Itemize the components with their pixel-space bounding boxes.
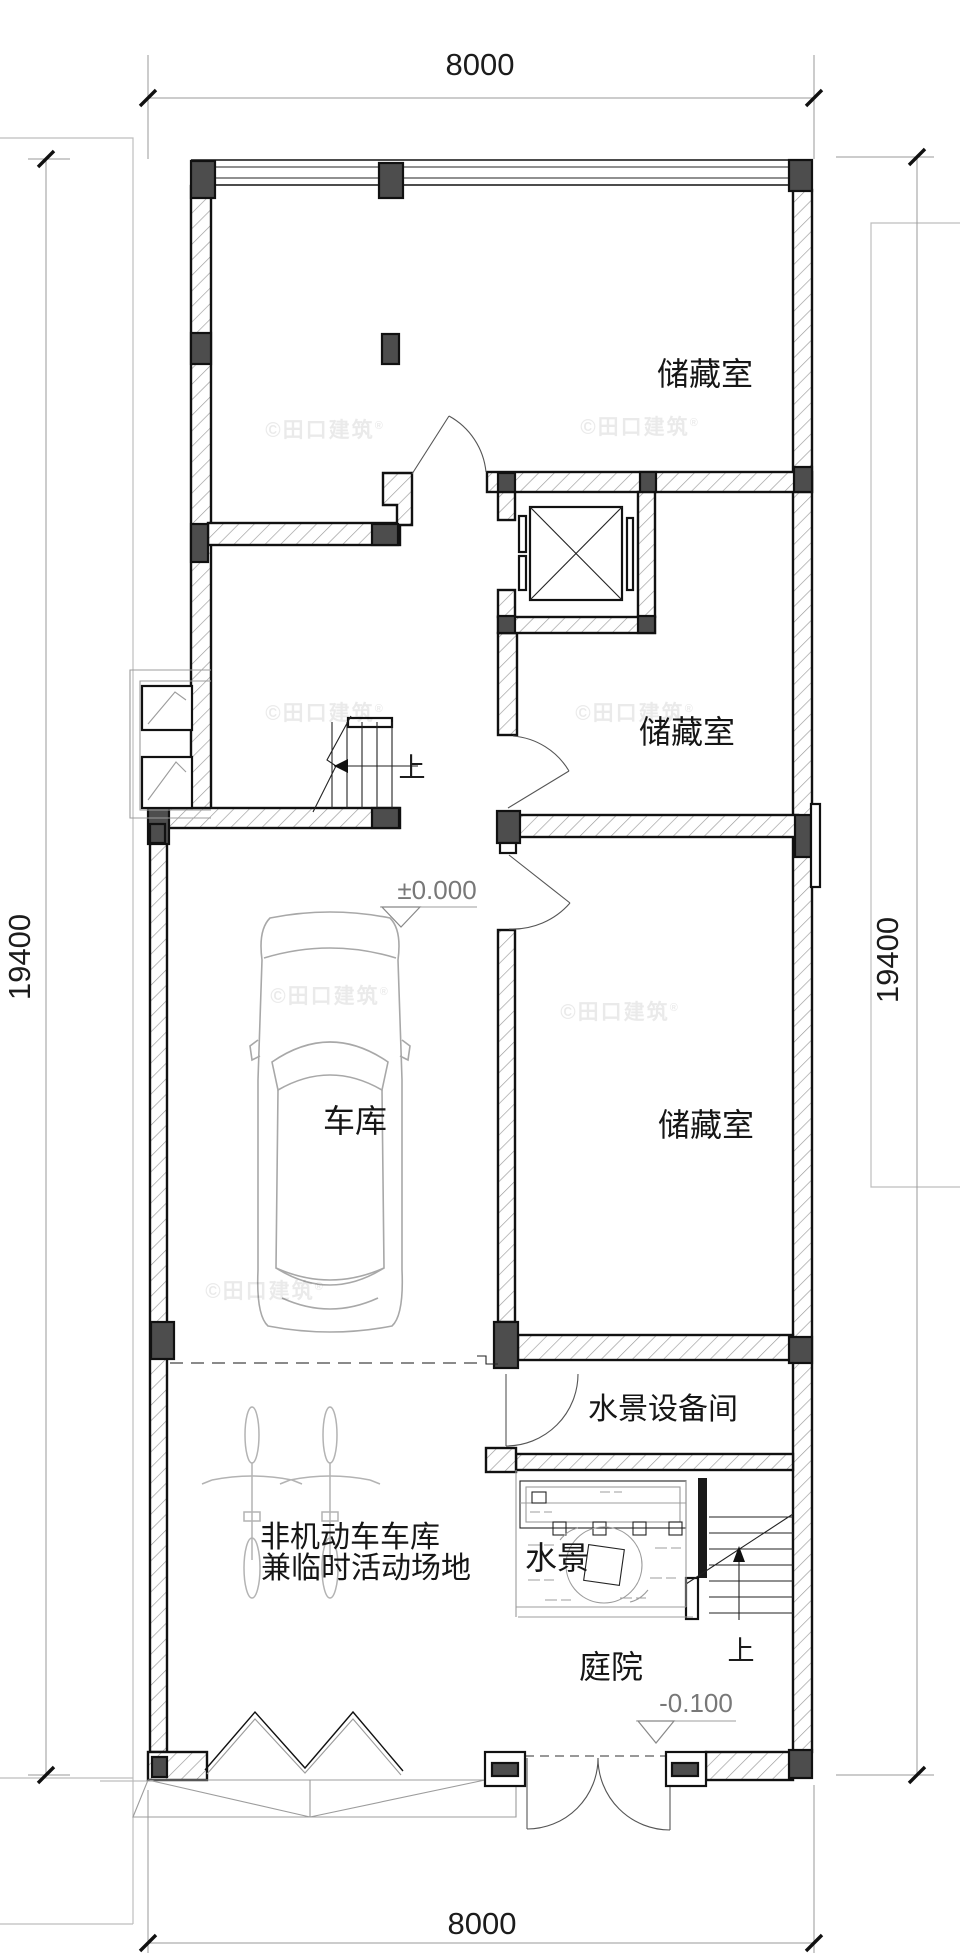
walls <box>148 159 812 1780</box>
door-water-equipment <box>506 1374 578 1446</box>
columns <box>148 160 820 1778</box>
dimension-right: 19400 <box>836 149 934 1783</box>
wall-right <box>793 190 812 1752</box>
stair-interior: 上 <box>313 716 426 812</box>
site-boundary-left <box>0 138 148 1924</box>
dim-top-label: 8000 <box>446 47 515 82</box>
level-ground-text: ±0.000 <box>397 875 476 905</box>
garage-folding-door <box>205 1712 403 1775</box>
site-boundary-right <box>871 223 960 1187</box>
dimension-top: 8000 <box>140 47 822 159</box>
watermark: ©田口建筑® <box>205 1279 325 1303</box>
stair-direction-arrow <box>733 1546 745 1562</box>
room-label-bike-garage-2: 兼临时活动场地 <box>261 1552 471 1585</box>
floor-plan-drawing: 8000 8000 19400 19400 <box>0 0 960 1960</box>
wall-waterequip-jog <box>486 1448 516 1472</box>
wall-waterequip-bottom <box>516 1454 793 1470</box>
niche-box <box>142 757 192 808</box>
wall-bottom-right <box>706 1752 793 1780</box>
driveway-apron <box>133 1780 516 1817</box>
door-garage-storage3 <box>509 855 570 929</box>
elevator <box>498 492 655 633</box>
level-courtyard-text: -0.100 <box>659 1688 733 1718</box>
door-storage1 <box>412 416 486 474</box>
watermark: ©田口建筑® <box>265 701 385 725</box>
dim-bottom-label: 8000 <box>448 1906 517 1941</box>
door-storage2 <box>508 736 569 808</box>
wall-door-jog <box>383 473 412 525</box>
wall-garage-right <box>498 930 515 1322</box>
elevator-rail <box>627 518 633 590</box>
watermark: ©田口建筑® <box>270 984 390 1008</box>
level-marker-ground: ±0.000 <box>380 875 477 927</box>
wall-left-lower <box>150 810 167 1752</box>
room-label-bike-garage-1: 非机动车车库 <box>260 1521 440 1554</box>
elevator-door-panel <box>519 516 526 552</box>
wall-left-upper <box>191 186 211 810</box>
watermark: ©田口建筑® <box>580 415 700 439</box>
room-label-water-feature: 水景 <box>525 1540 589 1576</box>
dim-right-label: 19400 <box>870 917 905 1003</box>
floor-plan-page: 8000 8000 19400 19400 <box>0 0 960 1960</box>
stair-up-label-1: 上 <box>399 753 426 783</box>
entry-double-door <box>525 1756 672 1830</box>
room-label-storage-1: 储藏室 <box>657 356 753 392</box>
stair-side-wall <box>698 1478 707 1578</box>
wall-storage3-bottom <box>518 1335 793 1360</box>
wall-storage2-bottom <box>498 815 798 837</box>
stair-exterior: 上 <box>686 1478 793 1666</box>
room-label-water-equipment: 水景设备间 <box>588 1393 738 1426</box>
room-label-courtyard: 庭院 <box>579 1649 643 1685</box>
dimension-bottom: 8000 <box>140 1785 822 1953</box>
watermark: ©田口建筑® <box>575 701 695 725</box>
watermark: ©田口建筑® <box>265 418 385 442</box>
elevator-door-panel <box>519 556 526 590</box>
dimension-left: 19400 <box>2 151 70 1783</box>
room-label-garage: 车库 <box>323 1103 387 1139</box>
stair-up-label-2: 上 <box>728 1636 755 1666</box>
stair-direction-arrow <box>334 759 348 773</box>
room-label-storage-3: 储藏室 <box>658 1107 754 1143</box>
watermark: ©田口建筑® <box>560 1000 680 1024</box>
dim-left-label: 19400 <box>2 914 37 1000</box>
level-marker-courtyard: -0.100 <box>636 1688 736 1743</box>
entry-piers <box>485 1752 706 1786</box>
watermarks: ©田口建筑® ©田口建筑® ©田口建筑® ©田口建筑® ©田口建筑® ©田口建筑… <box>205 415 700 1303</box>
wall-niche-right <box>811 804 820 887</box>
wall-below-elevator <box>498 633 517 735</box>
niche-box <box>142 686 192 730</box>
